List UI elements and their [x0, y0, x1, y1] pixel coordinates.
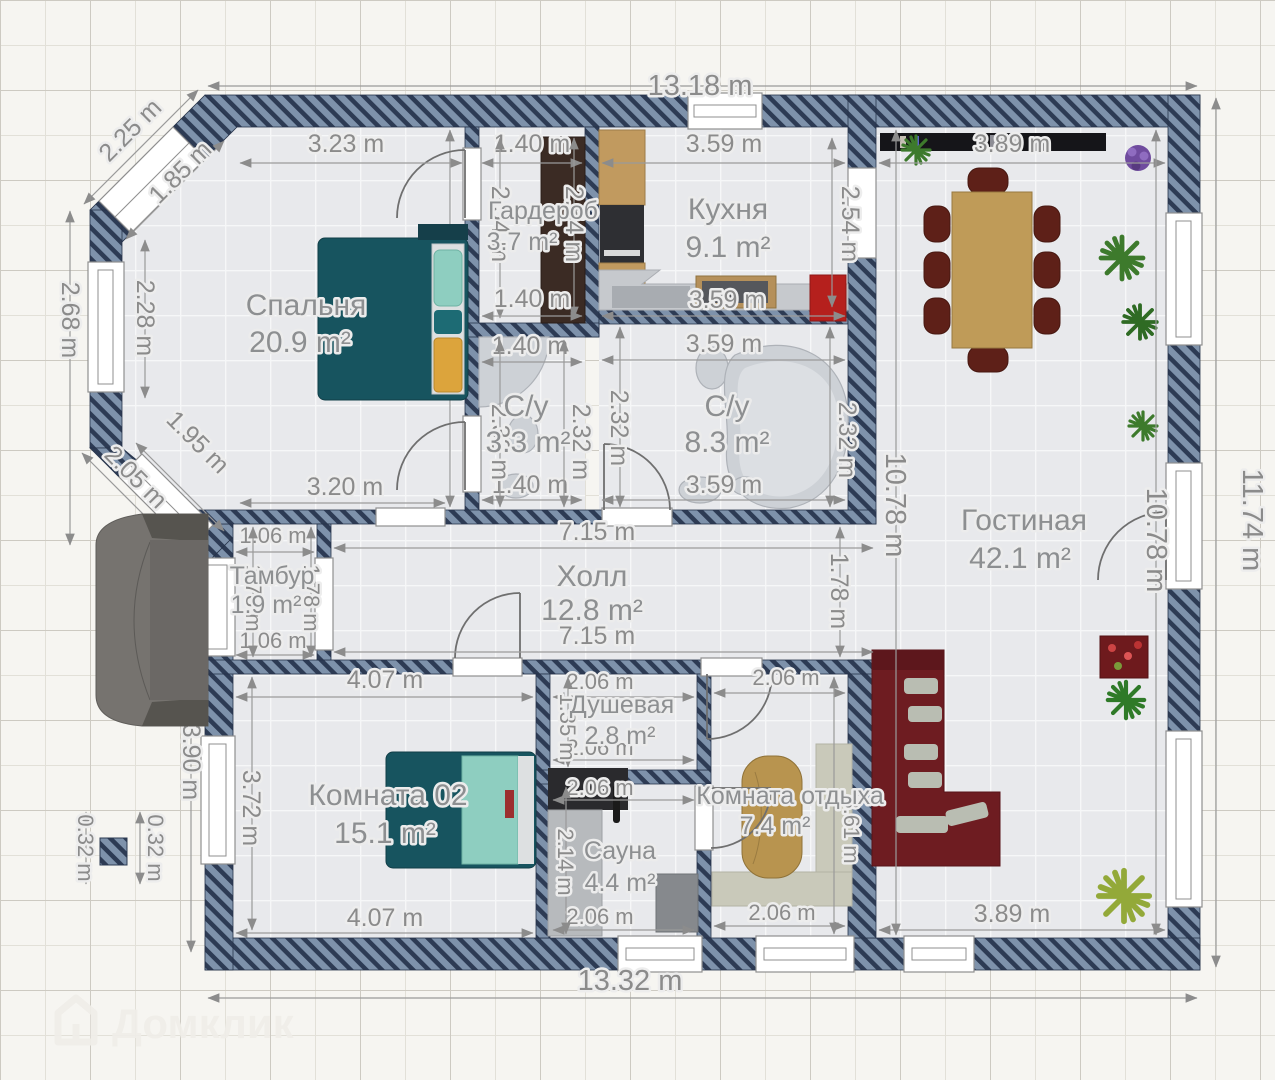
dim-label: 4.07 m — [347, 666, 423, 694]
dim-label: 2.06 m — [752, 665, 819, 690]
plant-icon — [1099, 871, 1149, 921]
dim-label: 3.59 m — [686, 471, 762, 499]
room-area: 20.9 m² — [249, 326, 351, 359]
room-label: С/у — [504, 390, 549, 423]
column — [100, 838, 127, 865]
dim-label: 1.40 m — [494, 285, 570, 313]
room-area: 8.3 m² — [684, 426, 769, 459]
room-area: 4.4 m² — [585, 869, 656, 897]
dim-label: 2.32 m — [567, 404, 595, 480]
room-area: 3.3 m² — [485, 426, 570, 459]
dim-label: 2.32 m — [605, 390, 633, 466]
dim-label: 2.54 m — [836, 186, 864, 262]
floorplan-canvas: 5.00 m — [0, 0, 1275, 1080]
dim-label: 3.23 m — [308, 130, 384, 158]
dim-label: 7.15 m — [559, 518, 635, 546]
window — [1166, 731, 1202, 907]
flower-box — [1100, 636, 1148, 678]
dim-label: 2.68 m — [56, 282, 84, 358]
floorplan-page: 5.00 m — [0, 0, 1275, 1080]
room-label: Гардероб — [488, 197, 598, 225]
room-label: Сауна — [584, 837, 656, 865]
room-label: Комната отдыха — [696, 782, 884, 810]
flower-pot-icon — [1125, 145, 1151, 171]
fridge — [810, 275, 846, 321]
dim-label: 4.07 m — [347, 904, 423, 932]
door-sill — [376, 508, 445, 526]
window — [1166, 213, 1202, 345]
dim-label: 2.28 m — [131, 280, 159, 356]
room-area: 12.8 m² — [541, 594, 643, 627]
dim-label: 3.59 m — [686, 130, 762, 158]
room-label: Спальня — [246, 289, 367, 322]
dining-table — [952, 192, 1032, 348]
plant-icon — [1123, 305, 1157, 339]
dim-label: 2.06 m — [748, 900, 815, 925]
room-area: 7.4 m² — [740, 812, 811, 840]
room-label: Комната 02 — [308, 779, 467, 812]
dim-label: 1.06 m — [239, 628, 306, 653]
room-label: Кухня — [688, 193, 768, 226]
dim-label: 3.59 m — [689, 286, 765, 314]
dim-label: 2.32 m — [833, 402, 861, 478]
dim-label: 2.06 m — [566, 775, 633, 800]
dim-label: 3.72 m — [237, 770, 265, 846]
room-label: С/у — [705, 390, 750, 423]
room-area: 9.1 m² — [685, 231, 770, 264]
window — [904, 936, 974, 972]
dim-label: 0.32 m — [143, 814, 168, 881]
dim-label: 13.18 m — [648, 70, 753, 102]
watermark-text: Домклик — [112, 1000, 295, 1047]
room-label: Душевая — [570, 691, 674, 719]
window — [201, 736, 235, 864]
window — [756, 936, 854, 972]
room-label: Холл — [557, 560, 628, 593]
dim-label: 1.06 m — [239, 523, 306, 548]
dim-label: 3.90 m — [177, 724, 205, 800]
dim-label: 3.89 m — [974, 130, 1050, 158]
plant-icon — [1101, 237, 1143, 279]
plant-icon — [1108, 682, 1144, 718]
room-label: Гостиная — [961, 504, 1087, 537]
dim-label: 10.78 m — [879, 453, 911, 558]
dim-label: 1.40 m — [492, 332, 568, 360]
dim-label: 3.59 m — [686, 330, 762, 358]
room-area: 42.1 m² — [969, 542, 1071, 575]
room-area: 2.8 m² — [585, 722, 656, 750]
dim-label: 3.89 m — [974, 900, 1050, 928]
plant-icon — [902, 136, 930, 164]
dim-label: 2.06 m — [566, 904, 633, 929]
dim-label: 10.78 m — [1140, 488, 1172, 593]
sauna-stove — [656, 874, 698, 932]
dim-label: 13.32 m — [578, 965, 683, 997]
dim-label: 0.32 m — [73, 814, 98, 881]
dim-label: 1.78 m — [825, 553, 853, 629]
dim-label: 1.40 m — [494, 130, 570, 158]
plant-icon — [1129, 412, 1157, 440]
door-sill — [453, 658, 522, 676]
entrance-porch — [96, 514, 208, 726]
room-area: 1.9 m² — [231, 591, 302, 619]
room-area: 3.7 m² — [487, 228, 558, 256]
room-label: Тамбур — [230, 562, 315, 590]
dim-label: 2.14 m — [553, 828, 578, 895]
dim-label: 3.20 m — [307, 473, 383, 501]
room-area: 15.1 m² — [334, 817, 436, 850]
window — [88, 262, 124, 392]
dim-label: 11.74 m — [1236, 469, 1268, 572]
